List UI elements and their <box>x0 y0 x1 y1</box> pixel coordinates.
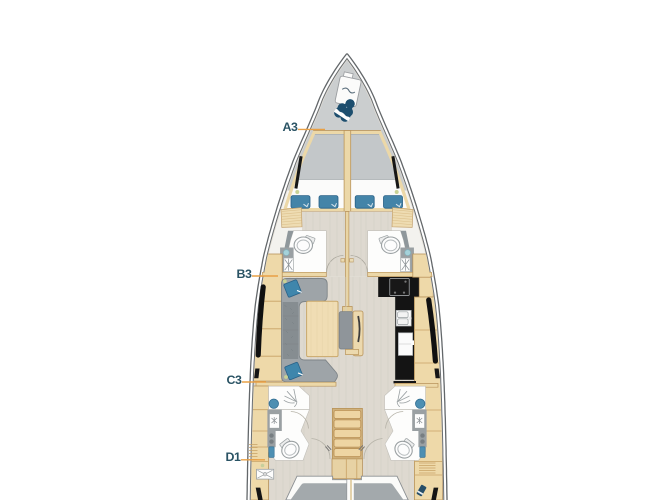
svg-text:B3: B3 <box>237 267 253 281</box>
svg-text:A3: A3 <box>283 120 299 134</box>
svg-text:D1: D1 <box>226 450 242 464</box>
svg-text:C3: C3 <box>227 373 243 387</box>
